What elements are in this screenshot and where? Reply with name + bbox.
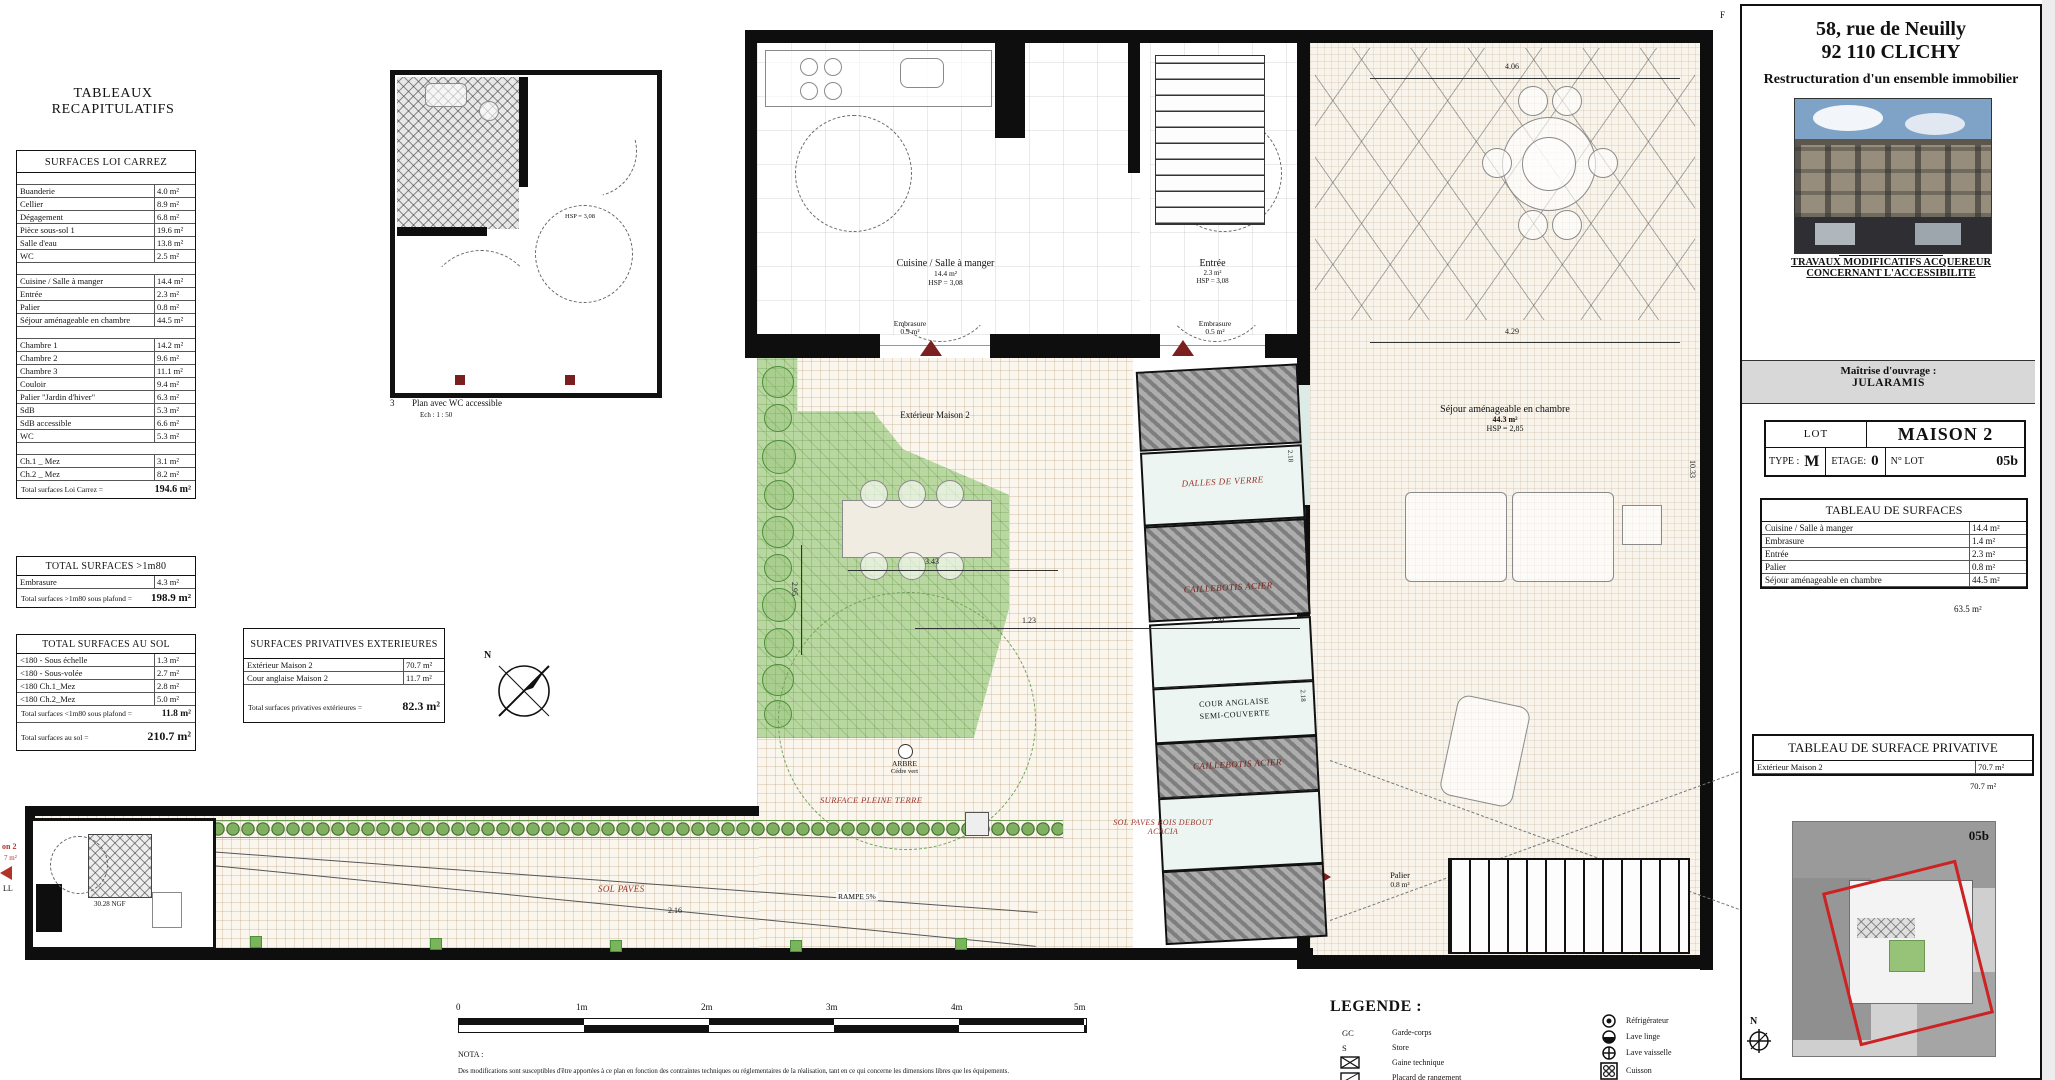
dimension-label: 3.43 (925, 557, 939, 566)
tree-canopy-dashed (778, 592, 1036, 850)
legend-label: Placard de rangement (1392, 1073, 1461, 1080)
chair (1552, 210, 1582, 240)
chair (1552, 86, 1582, 116)
table-sup180-body: Embrasure4.3 m² (17, 576, 195, 589)
scale-bar-row (458, 1025, 1087, 1033)
dimension-label: 2.95 (790, 582, 799, 596)
table-row: <180 Ch.2_Mez5.0 m² (17, 693, 195, 706)
numero-lot-value: 05b (1996, 454, 2018, 470)
table-row: Salle d'eau13.8 m² (17, 237, 195, 250)
table-row: SdB accessible6.6 m² (17, 417, 195, 430)
dimension-line (915, 628, 1300, 629)
sejour-name: Séjour aménageable en chambre (1400, 404, 1610, 415)
etage-label: ETAGE: (1831, 456, 1866, 467)
entree-hsp: HSP = 3,08 (1165, 277, 1260, 285)
embrasure1-label: Embrasure 0.9 m² (880, 320, 940, 336)
chair (1518, 86, 1548, 116)
table-row: Chambre 29.6 m² (17, 352, 195, 365)
table-ausol-subtotal: Total surfaces <1m80 sous plafond = 11.8… (17, 706, 195, 723)
section-marker (455, 375, 465, 385)
moa-label: Maîtrise d'ouvrage : (1742, 365, 2035, 377)
table-sup180-total: Total surfaces >1m80 sous plafond = 198.… (17, 589, 195, 607)
kitchen-area: 14.4 m² (868, 269, 1023, 278)
wall (995, 43, 1025, 138)
table-sup180-title: TOTAL SURFACES >1m80 (17, 557, 195, 576)
table-row: Cour anglaise Maison 211.7 m² (244, 672, 444, 685)
table-row: Palier0.8 m² (1762, 561, 2026, 574)
section-triangle-icon (1172, 340, 1194, 356)
exterieur-maison-label: Extérieur Maison 2 (880, 410, 990, 420)
key-plan: 05b (1792, 821, 1996, 1057)
privative-table: TABLEAU DE SURFACE PRIVATIVE Extérieur M… (1752, 734, 2034, 776)
wc-fixture (479, 101, 499, 121)
round-table-inner (1522, 137, 1576, 191)
plan-sheet: TABLEAUX RECAPITULATIFS SURFACES LOI CAR… (0, 0, 2055, 1080)
surfaces-table-total: 63.5 m² (1954, 604, 1982, 614)
fixture (152, 892, 182, 928)
wall (25, 806, 759, 816)
etage-value: 0 (1871, 453, 1879, 470)
staircase (1448, 858, 1690, 954)
hedge-row (195, 820, 1063, 838)
embrasure2-label: Embrasure 0.5 m² (1185, 320, 1245, 336)
stool (860, 552, 888, 580)
legend-label: Gaine technique (1392, 1058, 1444, 1067)
privative-table-body: Extérieur Maison 270.7 m² (1754, 761, 2032, 774)
lot-value: MAISON 2 (1867, 422, 2024, 447)
table-row: Embrasure4.3 m² (17, 576, 195, 589)
wall (397, 227, 487, 236)
inset-plan: HSP = 3,08 (390, 70, 662, 398)
table-row: Séjour aménageable en chambre44.5 m² (1762, 574, 2026, 587)
nota-title: NOTA : (458, 1050, 483, 1059)
sejour-hsp: HSP = 2,85 (1400, 424, 1610, 433)
nota-text: Des modifications sont susceptibles d'êt… (458, 1068, 1698, 1075)
table-carrez-title: SURFACES LOI CARREZ (17, 151, 195, 173)
kitchen-counter (765, 50, 992, 107)
legend-label: Réfrigérateur (1626, 1016, 1669, 1025)
sejour-area: 44.3 m² (1400, 415, 1610, 424)
section-triangle-icon (920, 340, 942, 356)
keyplan-north-label: N (1750, 1016, 1757, 1027)
sheet-edge (2042, 0, 2055, 1080)
storefront-window (1815, 223, 1855, 245)
kitchen-label: Cuisine / Salle à manger 14.4 m² HSP = 3… (868, 258, 1023, 287)
project-subtitle: Restructuration d'un ensemble immobilier (1742, 72, 2040, 88)
privative-table-total: 70.7 m² (1970, 781, 1996, 791)
stool (936, 480, 964, 508)
legend-label: Lave vaisselle (1626, 1048, 1672, 1057)
table-privatives: SURFACES PRIVATIVES EXTERIEURES Extérieu… (243, 628, 445, 723)
tree-icon (764, 554, 792, 582)
table-row: Séjour aménageable en chambre44.5 m² (17, 314, 195, 327)
regard-box (965, 812, 989, 836)
door-swing-arc (528, 88, 654, 214)
tree-icon (764, 628, 794, 658)
ngf-label: 30.28 NGF (94, 900, 126, 908)
tma-line2: TRAVAUX MODIFICATIFS ACQUEREUR (1742, 257, 2040, 268)
left-panel-title: TABLEAUX RECAPITULATIFS (38, 86, 188, 118)
table-sup180: TOTAL SURFACES >1m80 Embrasure4.3 m² Tot… (16, 556, 196, 608)
cloud (1813, 105, 1883, 131)
table-row: Embrasure1.4 m² (1762, 535, 2026, 548)
pleine-terre-label: SURFACE PLEINE TERRE (820, 795, 922, 805)
lave-linge-icon (1602, 1030, 1616, 1044)
caillebotis-panel (1136, 363, 1302, 451)
caillebotis-label: CAILLEBOTIS ACIER (1158, 755, 1316, 773)
legend-label: Cuisson (1626, 1066, 1652, 1075)
rampe-label: RAMPE 5% (836, 892, 878, 901)
inset-caption-number: 3 (390, 398, 395, 408)
dimension-line (848, 570, 1058, 571)
roof-line (1795, 139, 1991, 145)
legend-label: Lave linge (1626, 1032, 1660, 1041)
terrace-hatch (1315, 48, 1695, 320)
address-line1: 58, rue de Neuilly (1742, 18, 2040, 41)
stove-burner (824, 82, 842, 100)
table-row: Ch.2 _ Mez8.2 m² (17, 468, 195, 481)
legend-label: Garde-corps (1392, 1028, 1432, 1037)
dimension-label: 2.16 (668, 906, 682, 915)
tma-line3: CONCERNANT L'ACCESSIBILITE (1742, 268, 2040, 279)
dimension-line (801, 545, 802, 655)
table-row: Cellier8.9 m² (17, 198, 195, 211)
sol-paves-label: SOL PAVES (598, 884, 645, 894)
surfaces-table-title: TABLEAU DE SURFACES (1762, 500, 2026, 522)
planter-icon (790, 940, 802, 952)
compass-icon (495, 662, 553, 720)
planter-icon (955, 938, 967, 950)
entree-name: Entrée (1165, 258, 1260, 269)
placard-icon (1340, 1072, 1360, 1080)
edge-cut-label: 7 m² (4, 854, 17, 862)
table-row: Chambre 114.2 m² (17, 339, 195, 352)
lave-vaisselle-icon (1602, 1046, 1616, 1060)
turning-circle (795, 115, 912, 232)
section-marker (565, 375, 575, 385)
dimension-label: 2.59 (1210, 616, 1224, 625)
table-row: Cuisine / Salle à manger14.4 m² (1762, 522, 2026, 535)
table-row: Extérieur Maison 270.7 m² (1754, 761, 2032, 774)
table-row: WC5.3 m² (17, 430, 195, 443)
dimension-label: 2.18 (1286, 450, 1295, 463)
wall (745, 30, 757, 358)
caillebotis-label: CAILLEBOTIS ACIER (1149, 578, 1307, 596)
chair (1518, 210, 1548, 240)
table-row: SdB5.3 m² (17, 404, 195, 417)
refrigerateur-icon (1602, 1014, 1616, 1028)
cour-anglaise-strip: DALLES DE VERRE CAILLEBOTIS ACIER COUR A… (1133, 349, 1332, 957)
wall (1297, 955, 1713, 969)
lot-label: LOT (1766, 422, 1867, 447)
table-carrez-body: Buanderie4.0 m²Cellier8.9 m²Dégagement6.… (17, 185, 195, 481)
table-ausol-title: TOTAL SURFACES AU SOL (17, 635, 195, 654)
wall (25, 948, 1313, 960)
edge-arrow-icon (0, 866, 12, 880)
planter-icon (610, 940, 622, 952)
table-row: Entrée2.3 m² (17, 288, 195, 301)
type-label: TYPE : (1769, 456, 1799, 467)
moa-name: JULARAMIS (1742, 377, 2035, 389)
tree-icon (762, 366, 794, 398)
sofa (1405, 492, 1507, 582)
tree-icon (762, 440, 796, 474)
entree-label: Entrée 2.3 m² HSP = 3,08 (1165, 258, 1260, 285)
dimension-label: 4.29 (1505, 327, 1519, 336)
surfaces-table-body: Cuisine / Salle à manger14.4 m²Embrasure… (1762, 522, 2026, 587)
stove-burner (800, 82, 818, 100)
table-row: Cuisine / Salle à manger14.4 m² (17, 275, 195, 288)
table-privatives-body: Extérieur Maison 270.7 m²Cour anglaise M… (244, 659, 444, 685)
table-carrez: SURFACES LOI CARREZ Buanderie4.0 m²Celli… (16, 150, 196, 499)
table-ausol: TOTAL SURFACES AU SOL <180 - Sous échell… (16, 634, 196, 751)
turning-circle (50, 836, 108, 894)
inset-caption: Plan avec WC accessible (412, 398, 502, 408)
facade-photo (1794, 98, 1992, 254)
stool (936, 552, 964, 580)
keyplan-lot-number: 05b (1969, 828, 1989, 844)
caillebotis-panel: CAILLEBOTIS ACIER (1155, 735, 1320, 799)
kitchen-sink (900, 58, 944, 88)
type-value: M (1804, 453, 1819, 471)
table-row: <180 - Sous-volée2.7 m² (17, 667, 195, 680)
wall (745, 30, 1712, 43)
privative-table-title: TABLEAU DE SURFACE PRIVATIVE (1754, 736, 2032, 761)
entree-area: 2.3 m² (1165, 269, 1260, 277)
wall (990, 334, 1160, 358)
wall (519, 77, 528, 187)
wall (1128, 43, 1140, 173)
dimension-line (1370, 342, 1680, 343)
cuisson-icon (1600, 1062, 1618, 1080)
table-row: Extérieur Maison 270.7 m² (244, 659, 444, 672)
table-spacer (17, 173, 195, 185)
kitchen-hsp: HSP = 3,08 (868, 278, 1023, 287)
numero-lot-label: N° LOT (1891, 456, 1924, 467)
table-row: Chambre 311.1 m² (17, 365, 195, 378)
dimension-label: 10.33 (1688, 460, 1697, 478)
north-label: N (484, 650, 491, 661)
wall (745, 334, 880, 358)
title-block: 58, rue de Neuilly 92 110 CLICHY Restruc… (1740, 4, 2042, 1080)
address-line2: 92 110 CLICHY (1742, 41, 2040, 64)
table-row: Couloir9.4 m² (17, 378, 195, 391)
sink-fixture (425, 83, 467, 107)
building-facade (1795, 143, 1991, 217)
dimension-label: 2.18 (1299, 689, 1308, 702)
gaine-technique-icon (1340, 1056, 1360, 1069)
glass-panel: DALLES DE VERRE (1140, 444, 1306, 526)
table-privatives-title: SURFACES PRIVATIVES EXTERIEURES (244, 629, 444, 659)
table-privatives-total: Total surfaces privatives extérieures = … (244, 685, 444, 722)
dimension-line (1370, 78, 1680, 79)
table-row: <180 Ch.1_Mez2.8 m² (17, 680, 195, 693)
stool (860, 480, 888, 508)
door-swing-arc (425, 250, 537, 362)
edge-cut-label: LL (3, 884, 13, 893)
lot-table: LOT MAISON 2 TYPE : M ETAGE: 0 N° LOT 05… (1764, 420, 2026, 477)
wall (1700, 30, 1713, 970)
kitchen-name: Cuisine / Salle à manger (868, 258, 1023, 269)
table-row: Palier "Jardin d'hiver"6.3 m² (17, 391, 195, 404)
arbre-marker-icon (898, 744, 913, 759)
garden-table (842, 500, 992, 558)
caillebotis-panel (1162, 863, 1328, 945)
inset-scale: Ech : 1 : 50 (420, 411, 452, 419)
tree-icon (764, 480, 794, 510)
table-row: Entrée2.3 m² (1762, 548, 2026, 561)
tree-icon (762, 516, 794, 548)
surfaces-table: TABLEAU DE SURFACES Cuisine / Salle à ma… (1760, 498, 2028, 589)
table-spacer (17, 443, 195, 455)
planter-icon (430, 938, 442, 950)
dalles-label: DALLES DE VERRE (1143, 472, 1301, 490)
moa-band: Maîtrise d'ouvrage : JULARAMIS (1742, 360, 2035, 404)
table-row: Buanderie4.0 m² (17, 185, 195, 198)
glass-panel: COUR ANGLAISE SEMI-COUVERTE (1152, 680, 1317, 744)
table-row: WC2.5 m² (17, 250, 195, 263)
tree-icon (764, 404, 792, 432)
arbre-label: ARBRE (872, 759, 937, 768)
sol-paves-bois-label: SOL PAVES BOIS DEBOUT ACACIA (1098, 818, 1228, 836)
table-row: <180 - Sous échelle1.3 m² (17, 654, 195, 667)
planter-icon (250, 936, 262, 948)
palier-label: Palier 0.8 m² (1370, 870, 1430, 889)
table-row: Palier0.8 m² (17, 301, 195, 314)
stove-burner (800, 58, 818, 76)
cloud (1905, 113, 1965, 135)
staircase (1155, 55, 1265, 225)
chair (1482, 148, 1512, 178)
legend-label: Store (1392, 1043, 1409, 1052)
table-carrez-total: Total surfaces Loi Carrez = 194.6 m² (17, 481, 195, 498)
dimension-label: 4.06 (1505, 62, 1519, 71)
table-row: Dégagement6.8 m² (17, 211, 195, 224)
storefront-window (1915, 223, 1961, 245)
dimension-label: 1.23 (1022, 616, 1036, 625)
table-spacer (17, 263, 195, 275)
keyplan-north-icon (1746, 1028, 1772, 1054)
legend-title: LEGENDE : (1330, 998, 1422, 1016)
chair (1588, 148, 1618, 178)
caillebotis-panel: CAILLEBOTIS ACIER (1144, 518, 1311, 622)
inset-hsp-label: HSP = 3,08 (565, 213, 595, 220)
scale-bar: 0 1m 2m 3m 4m 5m (458, 1002, 1098, 1038)
grid-reference: F (1720, 10, 1725, 20)
table-row: Ch.1 _ Mez3.1 m² (17, 455, 195, 468)
table-spacer (17, 327, 195, 339)
sofa (1512, 492, 1614, 582)
table-ausol-total: Total surfaces au sol = 210.7 m² (17, 723, 195, 750)
edge-cut-label: on 2 (2, 842, 16, 851)
arbre-species-label: Cédre vert (872, 768, 937, 775)
wall (36, 884, 62, 932)
sejour-label: Séjour aménageable en chambre 44.3 m² HS… (1400, 404, 1610, 433)
table-ausol-body: <180 - Sous échelle1.3 m²<180 - Sous-vol… (17, 654, 195, 706)
legend-key-s: S (1342, 1043, 1347, 1053)
legend-key-gc: GC (1342, 1028, 1354, 1038)
side-table (1622, 505, 1662, 545)
table-row: Pièce sous-sol 119.6 m² (17, 224, 195, 237)
stool (898, 480, 926, 508)
stove-burner (824, 58, 842, 76)
stool (898, 552, 926, 580)
